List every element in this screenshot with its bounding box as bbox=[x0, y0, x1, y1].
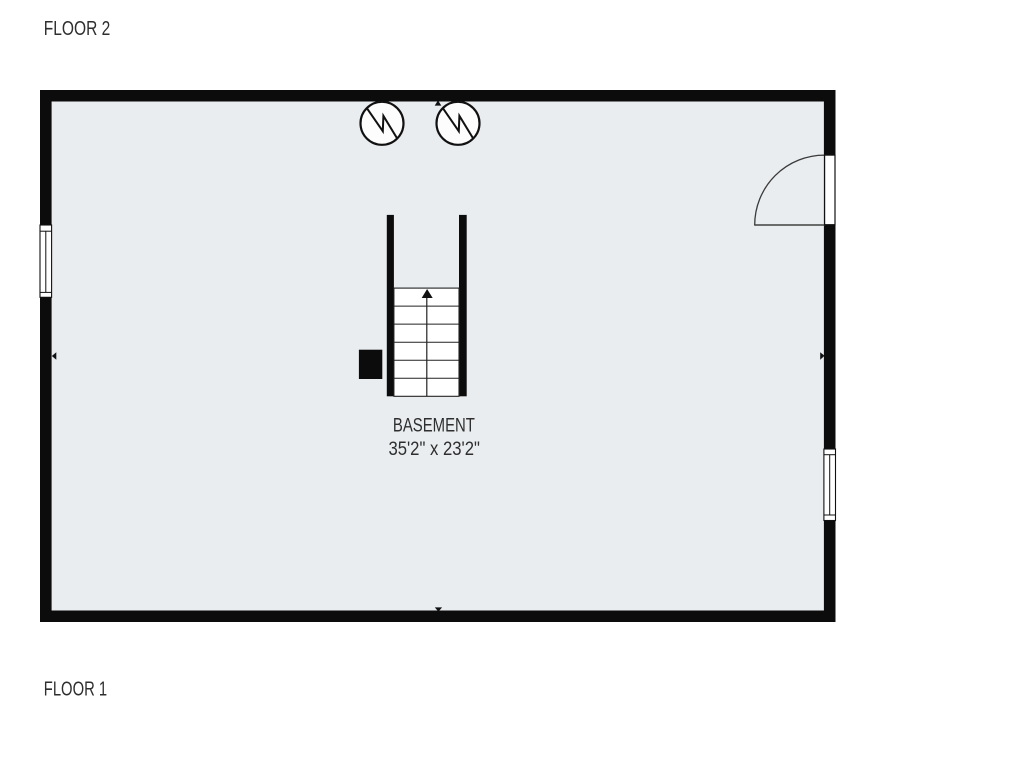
svg-text:BASEMENT: BASEMENT bbox=[393, 414, 475, 436]
svg-text:FLOOR 1: FLOOR 1 bbox=[44, 679, 107, 701]
svg-text:35'2" x 23'2": 35'2" x 23'2" bbox=[388, 438, 480, 460]
svg-text:FLOOR 2: FLOOR 2 bbox=[44, 18, 111, 40]
